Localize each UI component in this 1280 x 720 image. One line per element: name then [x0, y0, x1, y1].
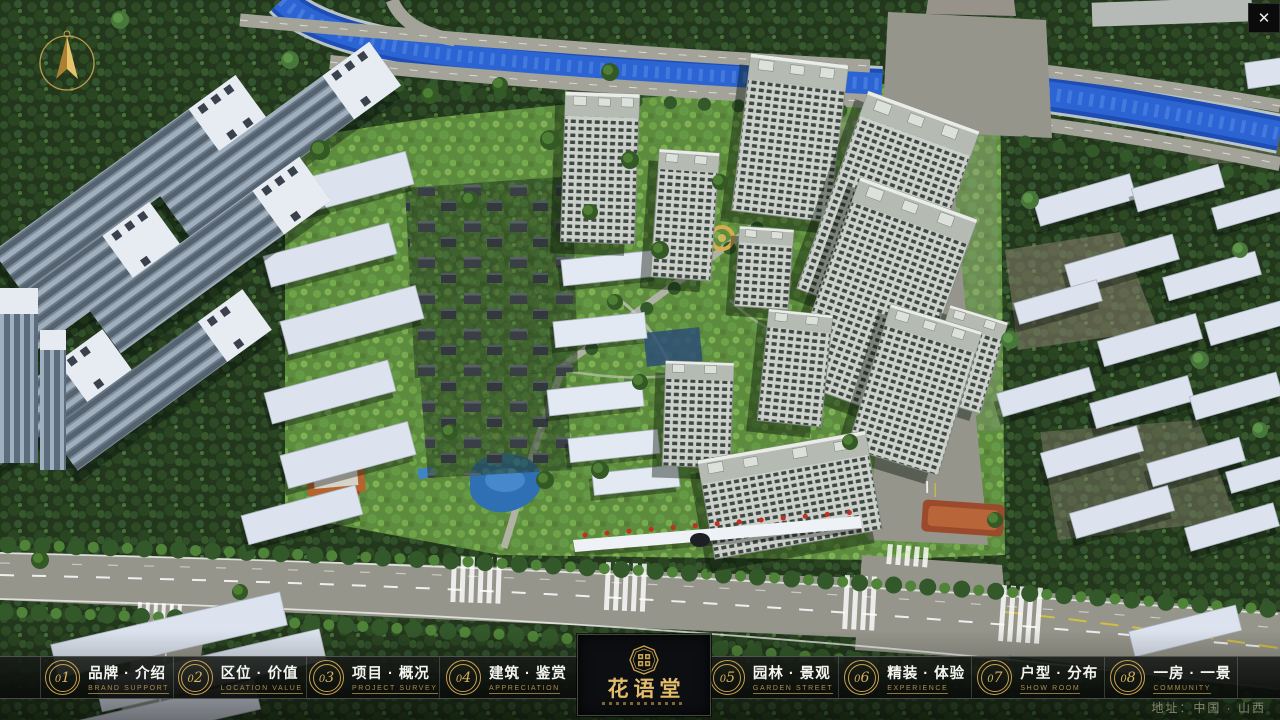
nav-item-community[interactable]: 08 一房 · 一景COMMUNITY — [1104, 657, 1238, 698]
brand-logo-panel[interactable]: 花语堂 — [577, 634, 711, 716]
nav-badge: 03 — [309, 660, 344, 695]
site-plan-map[interactable] — [0, 0, 1280, 720]
nav-label-zh: 精装 · 体验 — [887, 662, 965, 683]
project-address: 地址：中国 · 山西 — [1151, 699, 1266, 716]
brand-subtitle-rule — [602, 702, 686, 705]
nav-label-zh: 区位 · 价值 — [221, 662, 299, 683]
nav-label-zh: 品牌 · 介绍 — [88, 662, 166, 683]
nav-label-en: APPRECIATION — [489, 685, 560, 694]
nav-item-interior[interactable]: 06 精装 · 体验EXPERIENCE — [838, 657, 971, 698]
brand-name: 花语堂 — [603, 678, 686, 699]
nav-badge: 04 — [446, 660, 481, 695]
nav-badge: 06 — [844, 660, 879, 695]
nav-label-en: COMMUNITY — [1153, 685, 1211, 694]
nav-label-zh: 园林 · 景观 — [753, 662, 831, 683]
nav-label-zh: 户型 · 分布 — [1020, 662, 1098, 683]
nav-label-zh: 一房 · 一景 — [1153, 662, 1231, 683]
close-button[interactable]: ✕ — [1248, 3, 1280, 33]
nav-badge: 08 — [1110, 660, 1145, 695]
nav-badge: 05 — [710, 660, 745, 695]
nav-item-architecture[interactable]: 04 建筑 · 鉴赏APPRECIATION — [439, 657, 572, 698]
nav-label-zh: 项目 · 概况 — [352, 662, 430, 683]
close-icon: ✕ — [1258, 9, 1271, 27]
brand-seal-icon — [629, 645, 659, 675]
nav-spacer — [0, 657, 40, 698]
app-window: ✕ 01 品牌 · 介绍BRAND SUPPORT 02 区位 · 价值LOCA… — [0, 0, 1280, 720]
nav-label-en: PROJECT SURVEY — [352, 685, 438, 694]
nav-label-en: LOCATION VALUE — [221, 685, 303, 694]
nav-item-garden[interactable]: 05 园林 · 景观GARDEN STREET — [705, 657, 838, 698]
nav-badge: 07 — [977, 660, 1012, 695]
nav-badge: 01 — [45, 660, 80, 695]
nav-label-en: GARDEN STREET — [753, 685, 833, 694]
nav-label-en: BRAND SUPPORT — [88, 685, 169, 694]
nav-item-project[interactable]: 03 项目 · 概况PROJECT SURVEY — [306, 657, 439, 698]
nav-item-floorplan[interactable]: 07 户型 · 分布SHOW ROOM — [971, 657, 1104, 698]
nav-label-en: EXPERIENCE — [887, 685, 948, 694]
nav-spacer — [1238, 657, 1280, 698]
nav-item-brand[interactable]: 01 品牌 · 介绍BRAND SUPPORT — [40, 657, 173, 698]
nav-label-en: SHOW ROOM — [1020, 685, 1080, 694]
nav-label-zh: 建筑 · 鉴赏 — [489, 662, 567, 683]
nav-item-location[interactable]: 02 区位 · 价值LOCATION VALUE — [173, 657, 306, 698]
nav-badge: 02 — [178, 660, 213, 695]
